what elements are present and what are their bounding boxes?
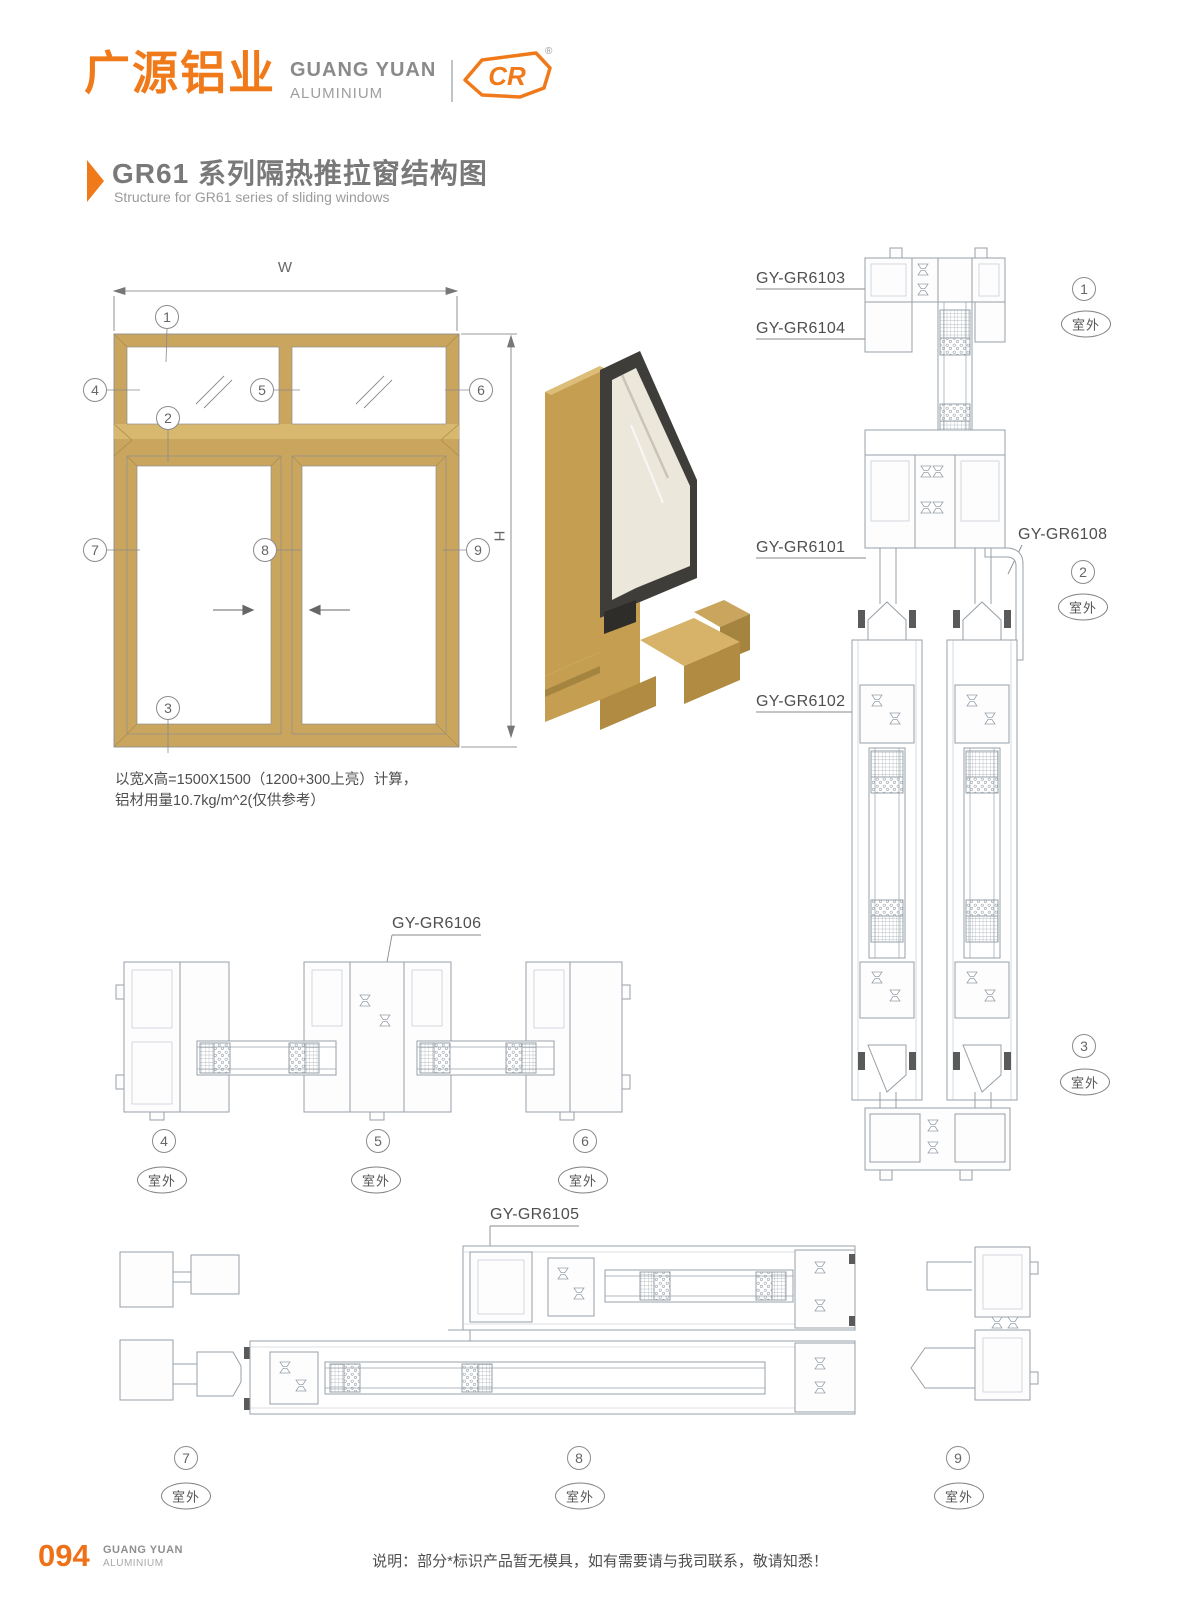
section-marker-1: 1 xyxy=(1072,277,1096,301)
note-line-1: 以宽X高=1500X1500（1200+300上亮）计算， xyxy=(115,770,417,791)
page-subtitle: Structure for GR61 series of sliding win… xyxy=(114,189,389,205)
svg-text:CR: CR xyxy=(488,61,526,91)
callout-7: 7 xyxy=(83,538,107,562)
callout-9: 9 xyxy=(466,538,490,562)
dim-height-label: H xyxy=(491,531,508,542)
profile-label-gr6103: GY-GR6103 xyxy=(756,271,845,287)
vertical-section-drawing xyxy=(756,248,1023,1180)
callout-5: 5 xyxy=(250,378,274,402)
brand-name-en: GUANG YUAN xyxy=(290,60,436,80)
section-marker-4: 4 xyxy=(152,1129,176,1153)
callout-2: 2 xyxy=(156,406,180,430)
callout-6: 6 xyxy=(469,378,493,402)
callout-8: 8 xyxy=(253,538,277,562)
cr-logo-icon: CR xyxy=(460,48,555,106)
outdoor-badge-5: 室外 xyxy=(351,1167,401,1194)
callout-4: 4 xyxy=(83,378,107,402)
calculation-note: 以宽X高=1500X1500（1200+300上亮）计算， 铝材用量10.7kg… xyxy=(115,770,417,811)
outdoor-badge-2: 室外 xyxy=(1058,594,1108,621)
dim-width-label: W xyxy=(278,259,292,276)
catalog-page: 广源铝业 GUANG YUAN ALUMINIUM CR ® GR61 系列隔热… xyxy=(0,0,1200,1617)
section-marker-5: 5 xyxy=(366,1129,390,1153)
outdoor-badge-8: 室外 xyxy=(555,1483,605,1510)
profile-label-gr6101: GY-GR6101 xyxy=(756,540,845,556)
brand-logo-cn: 广源铝业 xyxy=(84,50,276,96)
horizontal-section-a xyxy=(116,935,630,1120)
outdoor-badge-4: 室外 xyxy=(137,1167,187,1194)
callout-3: 3 xyxy=(156,696,180,720)
outdoor-badge-6: 室外 xyxy=(558,1167,608,1194)
header-divider xyxy=(451,60,453,102)
note-line-2: 铝材用量10.7kg/m^2(仅供参考） xyxy=(115,791,417,812)
outdoor-badge-7: 室外 xyxy=(161,1483,211,1510)
section-marker-2: 2 xyxy=(1071,560,1095,584)
profile-3d-render xyxy=(545,351,750,730)
page-title: GR61 系列隔热推拉窗结构图 xyxy=(112,152,488,192)
profile-label-gr6106: GY-GR6106 xyxy=(392,916,481,932)
elevation-drawing xyxy=(107,288,517,754)
outdoor-badge-3: 室外 xyxy=(1060,1069,1110,1096)
horizontal-section-b xyxy=(120,1226,1038,1414)
registered-trademark: ® xyxy=(545,46,552,57)
profile-label-gr6105: GY-GR6105 xyxy=(490,1207,579,1223)
callout-1: 1 xyxy=(155,305,179,329)
profile-label-gr6108: GY-GR6108 xyxy=(1018,527,1107,543)
outdoor-badge-1: 室外 xyxy=(1061,311,1111,338)
section-marker-6: 6 xyxy=(573,1129,597,1153)
section-marker-9: 9 xyxy=(946,1446,970,1470)
section-marker-8: 8 xyxy=(567,1446,591,1470)
profile-label-gr6104: GY-GR6104 xyxy=(756,321,845,337)
footer-disclaimer: 说明：部分*标识产品暂无模具，如有需要请与我司联系，敬请知悉！ xyxy=(0,1550,1200,1571)
title-arrow-icon xyxy=(87,160,104,202)
section-marker-3: 3 xyxy=(1072,1034,1096,1058)
section-marker-7: 7 xyxy=(174,1446,198,1470)
profile-label-gr6102: GY-GR6102 xyxy=(756,694,845,710)
brand-subname-en: ALUMINIUM xyxy=(290,86,383,101)
outdoor-badge-9: 室外 xyxy=(934,1483,984,1510)
